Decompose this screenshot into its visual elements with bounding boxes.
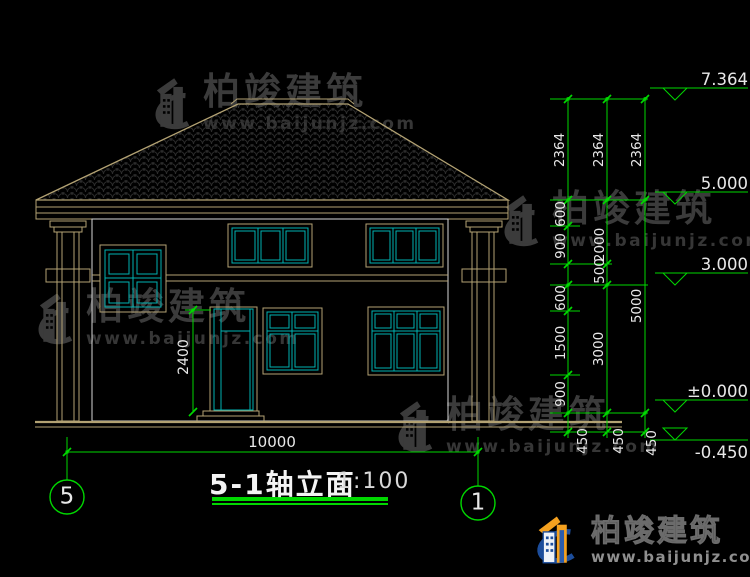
hip-roof [36,99,508,200]
first-floor-window-left [263,308,322,374]
door-height-dim: 2400 [176,339,192,375]
drawing-title: 5-1轴立面 [209,463,356,503]
first-floor-window-right [368,307,444,375]
elevation-value: ±0.000 [638,382,748,401]
elevation-value: -0.450 [638,443,748,462]
dim-label: 900 [553,233,569,259]
cad-elevation-screenshot: 柏竣建筑 www.baijunjz.com 柏竣建筑 www.baijunjz.… [0,0,750,577]
entry-door [210,307,257,411]
dim-label: 3000 [591,332,607,366]
overall-width-dim: 10000 [248,433,296,451]
drawing-scale: 1:100 [337,469,410,494]
elevation-value: 7.364 [638,70,748,89]
dim-label: 2364 [629,133,645,167]
dim-label: 600 [553,201,569,227]
dim-label: 450 [611,428,627,454]
dim-label: 2000 [592,228,608,262]
brand-logo-icon [526,512,584,570]
ground-line [35,422,622,427]
dim-label: 450 [575,428,591,454]
dim-label: 2364 [552,133,568,167]
dim-label: 1500 [553,326,569,360]
footer-brand: 柏竣建筑 www.baijunjz.com [526,512,750,570]
elevation-value: 3.000 [638,255,748,274]
grid-bubble-1: 1 [471,489,486,515]
column-left [46,221,90,421]
dim-label: 900 [553,381,569,407]
entry-steps [197,411,264,422]
brand-url: www.baijunjz.com [591,548,750,566]
staircase-window [100,245,166,312]
dim-label: 2364 [591,133,607,167]
eave-fascia [36,200,508,219]
elevation-value: 5.000 [638,174,748,193]
column-right [462,221,506,421]
second-floor-window-right [366,224,443,267]
brand-name: 柏竣建筑 [591,516,750,548]
second-floor-window-center [228,224,312,267]
dim-label: 5000 [629,289,645,323]
dim-label: 600 [553,285,569,311]
grid-bubble-5: 5 [60,483,75,509]
